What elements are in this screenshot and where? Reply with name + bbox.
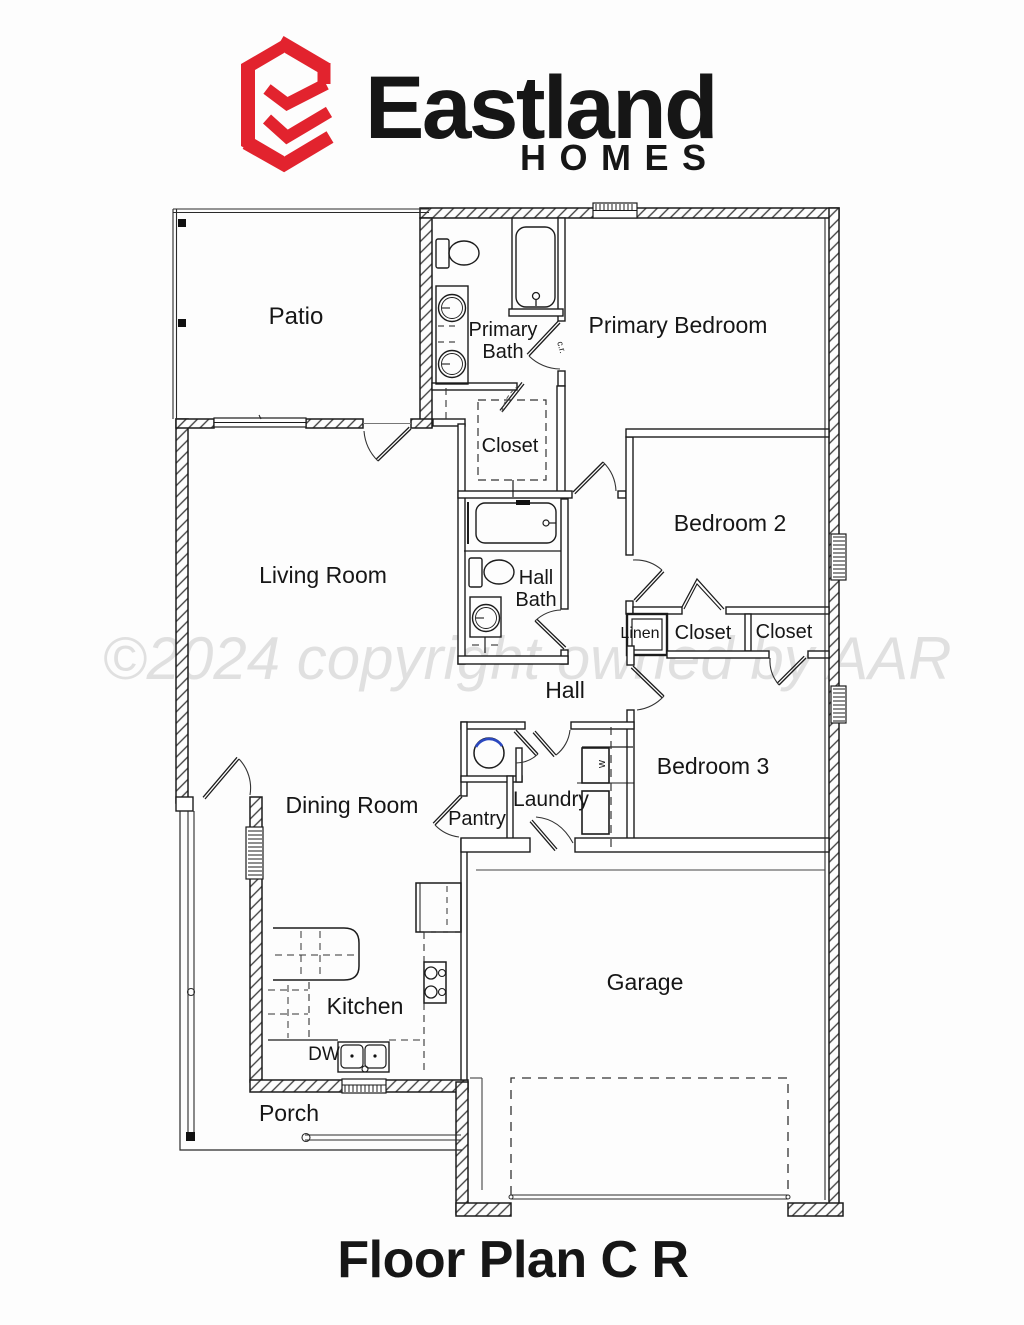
svg-text:Primary: Primary: [469, 319, 538, 341]
svg-text:Kitchen: Kitchen: [327, 993, 404, 1019]
svg-text:Closet: Closet: [482, 435, 539, 457]
svg-text:Bath: Bath: [515, 589, 556, 611]
svg-text:Garage: Garage: [607, 969, 684, 995]
svg-text:Bath: Bath: [482, 341, 523, 363]
svg-text:Bedroom 2: Bedroom 2: [674, 510, 787, 536]
svg-text:c.r.: c.r.: [555, 340, 568, 354]
svg-text:w: w: [596, 760, 608, 769]
svg-text:Closet: Closet: [675, 622, 732, 644]
svg-text:HOMES: HOMES: [520, 137, 720, 178]
svg-text:Linen: Linen: [620, 625, 659, 642]
svg-text:Living Room: Living Room: [259, 562, 387, 588]
svg-text:DW: DW: [308, 1044, 340, 1065]
svg-text:Floor Plan C R: Floor Plan C R: [337, 1231, 688, 1289]
svg-text:Hall: Hall: [519, 567, 553, 589]
svg-text:Porch: Porch: [259, 1100, 319, 1126]
svg-text:Primary Bedroom: Primary Bedroom: [589, 312, 768, 338]
svg-text:Bedroom 3: Bedroom 3: [657, 753, 770, 779]
svg-text:Laundry: Laundry: [513, 788, 589, 811]
svg-text:Patio: Patio: [269, 303, 324, 330]
svg-text:Hall: Hall: [545, 677, 585, 703]
svg-text:Closet: Closet: [756, 621, 813, 643]
svg-text:Dining Room: Dining Room: [286, 792, 419, 818]
svg-text:Pantry: Pantry: [448, 808, 506, 830]
